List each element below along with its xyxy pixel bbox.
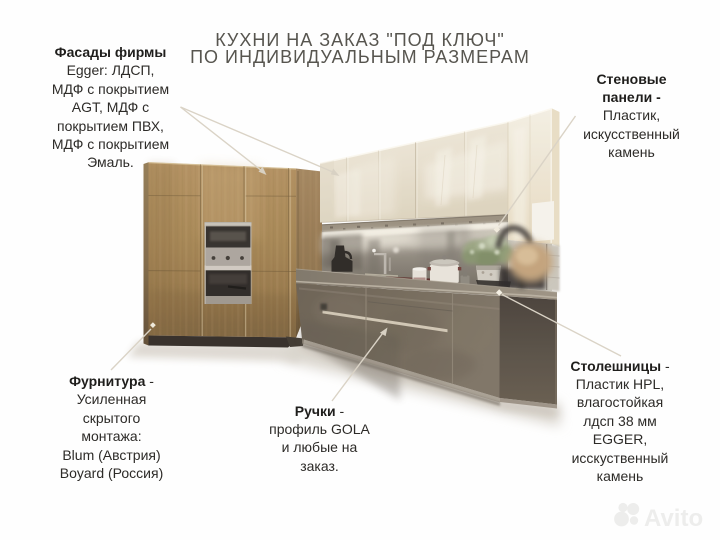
svg-text:Avito: Avito — [644, 505, 703, 532]
